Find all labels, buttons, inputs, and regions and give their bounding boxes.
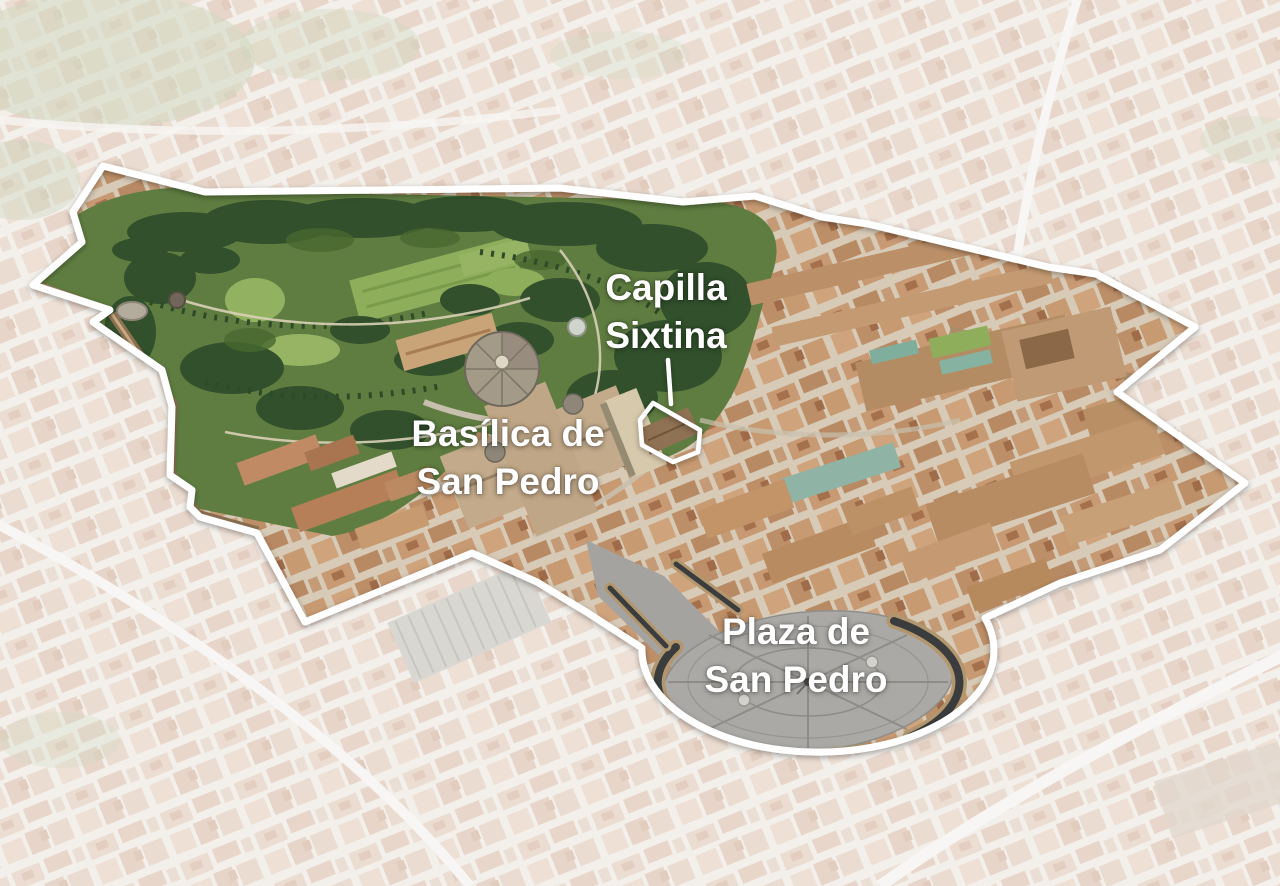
label-line: San Pedro bbox=[411, 458, 604, 506]
label-line: Capilla bbox=[605, 264, 726, 312]
leader-line bbox=[668, 360, 671, 404]
label-line: San Pedro bbox=[705, 656, 888, 704]
label-plaza-de-san-pedro: Plaza de San Pedro bbox=[705, 608, 888, 704]
aerial-map bbox=[0, 0, 1280, 886]
label-basilica-de-san-pedro: Basílica de San Pedro bbox=[411, 410, 604, 506]
label-line: Sixtina bbox=[605, 312, 726, 360]
label-line: Basílica de bbox=[411, 410, 604, 458]
label-capilla-sixtina: Capilla Sixtina bbox=[605, 264, 726, 360]
label-line: Plaza de bbox=[705, 608, 888, 656]
vatican-aerial-infographic: Capilla Sixtina Basílica de San Pedro Pl… bbox=[0, 0, 1280, 886]
